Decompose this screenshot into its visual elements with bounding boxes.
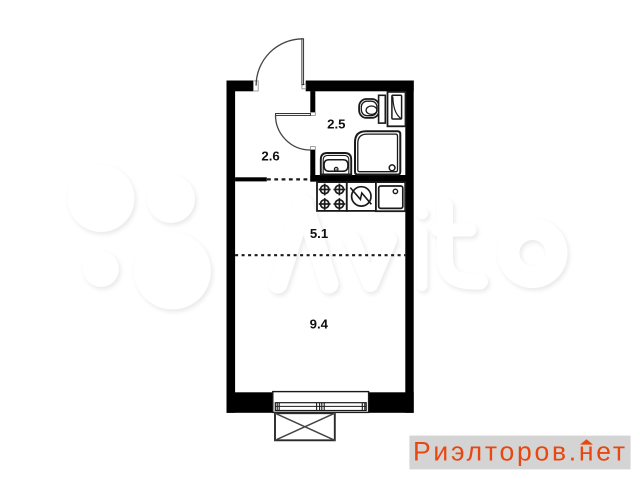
svg-text:2.6: 2.6: [261, 148, 279, 163]
svg-text:2.5: 2.5: [327, 116, 345, 131]
svg-text:9.4: 9.4: [310, 316, 329, 331]
svg-text:5.1: 5.1: [310, 226, 328, 241]
svg-text:Риэлторов.нет: Риэлторов.нет: [413, 437, 625, 467]
